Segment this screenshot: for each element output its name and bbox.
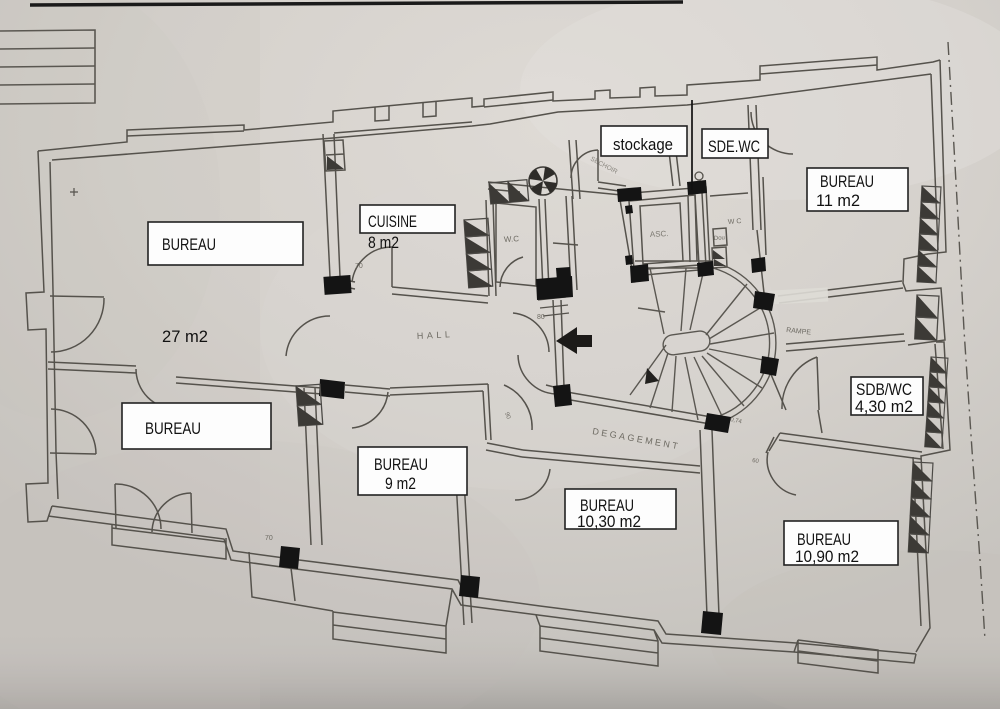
svg-text:4,30 m2: 4,30 m2: [855, 397, 913, 416]
svg-text:10,90 m2: 10,90 m2: [795, 547, 859, 566]
svg-text:BUREAU: BUREAU: [145, 419, 201, 438]
svg-text:BUREAU: BUREAU: [162, 235, 216, 254]
svg-text:W.C: W.C: [504, 234, 520, 244]
svg-text:stockage: stockage: [613, 135, 673, 154]
svg-text:BUREAU: BUREAU: [374, 455, 428, 474]
svg-text:CUISINE: CUISINE: [368, 212, 417, 231]
svg-text:11 m2: 11 m2: [816, 191, 860, 210]
svg-text:HALL: HALL: [417, 329, 454, 341]
svg-text:80: 80: [537, 314, 545, 321]
svg-text:8 m2: 8 m2: [368, 233, 399, 252]
svg-text:BUREAU: BUREAU: [820, 172, 874, 191]
svg-text:10,30 m2: 10,30 m2: [577, 512, 641, 531]
svg-text:W C: W C: [728, 218, 742, 226]
svg-text:ASC.: ASC.: [650, 229, 669, 239]
svg-text:Dou: Dou: [714, 235, 725, 242]
svg-text:70: 70: [355, 263, 363, 270]
svg-text:9 m2: 9 m2: [385, 474, 416, 493]
svg-text:SDE.WC: SDE.WC: [708, 137, 760, 156]
svg-text:70: 70: [265, 535, 273, 542]
svg-text:27 m2: 27 m2: [162, 327, 208, 346]
